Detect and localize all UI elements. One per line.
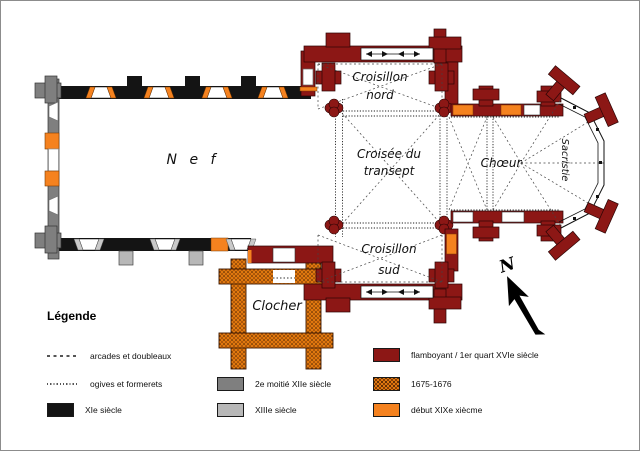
clocher-wall-south [219,333,333,348]
dashed-line-sample-icon [47,355,79,357]
clocher-doorway [273,248,295,262]
label-croisillon-sud-2: sud [378,263,400,277]
choeur-xixe-window [453,105,473,115]
nave-north-buttress [185,76,200,87]
choeur-window [502,212,524,222]
church-plan-figure: N N e f Croisillon nord Croisée du trans… [0,0,640,451]
legend-item-ogives: ogives et formerets [47,377,162,391]
label-choeur: Chœur [481,156,523,170]
crossing-pier-nw [325,99,343,117]
apse-column-mark [573,106,576,109]
choeur-south-buttress [473,221,499,241]
label-nef: N e f [167,152,220,168]
nave-north-window [202,87,232,98]
croisillon-sud-buttress [326,298,350,312]
legend-item-xiiie: XIIIe siècle [217,403,297,417]
label-croisillon-nord-1: Croisillon [352,70,407,84]
apse-column-mark [599,161,602,164]
north-arrow-letter: N [496,253,519,278]
nave-south-window [74,239,104,250]
stipple-swatch-1675 [373,377,400,391]
choeur-window [524,105,540,115]
legend-item-1675: 1675-1676 [373,377,452,391]
label-croisee-2: transept [364,164,416,178]
clocher-doorway-passage [273,270,295,283]
croisillon-nord-window [361,48,433,60]
nave-north-buttress [127,76,142,87]
legend-title: Légende [47,309,96,323]
west-facade-buttress-sw [35,226,61,253]
nave-south-buttress-xiiie [119,251,133,265]
north-arrow: N [496,253,546,343]
croisillon-nord-west-window [303,69,313,85]
crossing-pier-sw [325,216,343,234]
legend-item-xixe: début XIXe xiècme [373,403,482,417]
choeur-vault-ribs [449,99,605,226]
color-swatch-xiiie [217,403,244,417]
dotted-line-sample-icon [47,383,79,385]
color-swatch-xiie [217,377,244,391]
nave-north-window [144,87,174,98]
nave-north-window [258,87,288,98]
nave-south-buttress-xiiie [189,251,203,265]
nave-south-wall-xixe-section [211,238,228,251]
apse-column-mark [596,195,599,198]
apse-column-mark [596,128,599,131]
croisillon-nord-buttress [326,33,350,47]
croisillon-sud-xixe-window [447,234,457,254]
west-facade-xixe-section [45,171,59,186]
croisillon-nord-xixe-sill [300,87,317,91]
croisillon-sud-window [361,286,433,298]
color-swatch-xixe [373,403,400,417]
legend-item-xiie: 2e moitié XIIe siècle [217,377,331,391]
legend-item-xie: XIe siècle [47,403,122,417]
nave-north-buttress [241,76,256,87]
nave [35,76,311,265]
label-sacristie: Sacristie [559,139,570,182]
nave-north-window [86,87,116,98]
label-croisillon-nord-2: nord [366,88,394,102]
nave-south-window [150,239,180,250]
label-croisee-1: Croisée du [357,147,421,161]
north-arrow-needle [497,271,546,343]
croisillon-nord-pier [316,63,341,91]
label-clocher: Clocher [252,299,303,314]
west-facade-xixe-section [45,133,59,149]
west-portal [49,149,59,171]
label-croisillon-sud-1: Croisillon [361,242,416,256]
apse-column-mark [573,217,576,220]
apse-buttress [580,193,619,234]
choeur-window [453,212,473,222]
west-facade-buttress-nw [35,76,61,103]
legend-item-arcades: arcades et doubleaux [47,349,171,363]
apse-buttress [580,93,619,134]
legend-item-flamboyant: flamboyant / 1er quart XVIe siècle [373,348,539,362]
choeur-north-buttress [473,86,499,106]
choeur-xixe-window [501,105,521,115]
color-swatch-xie [47,403,74,417]
south-connector-xixe-jamb [248,250,252,263]
color-swatch-flamboyant [373,348,400,362]
